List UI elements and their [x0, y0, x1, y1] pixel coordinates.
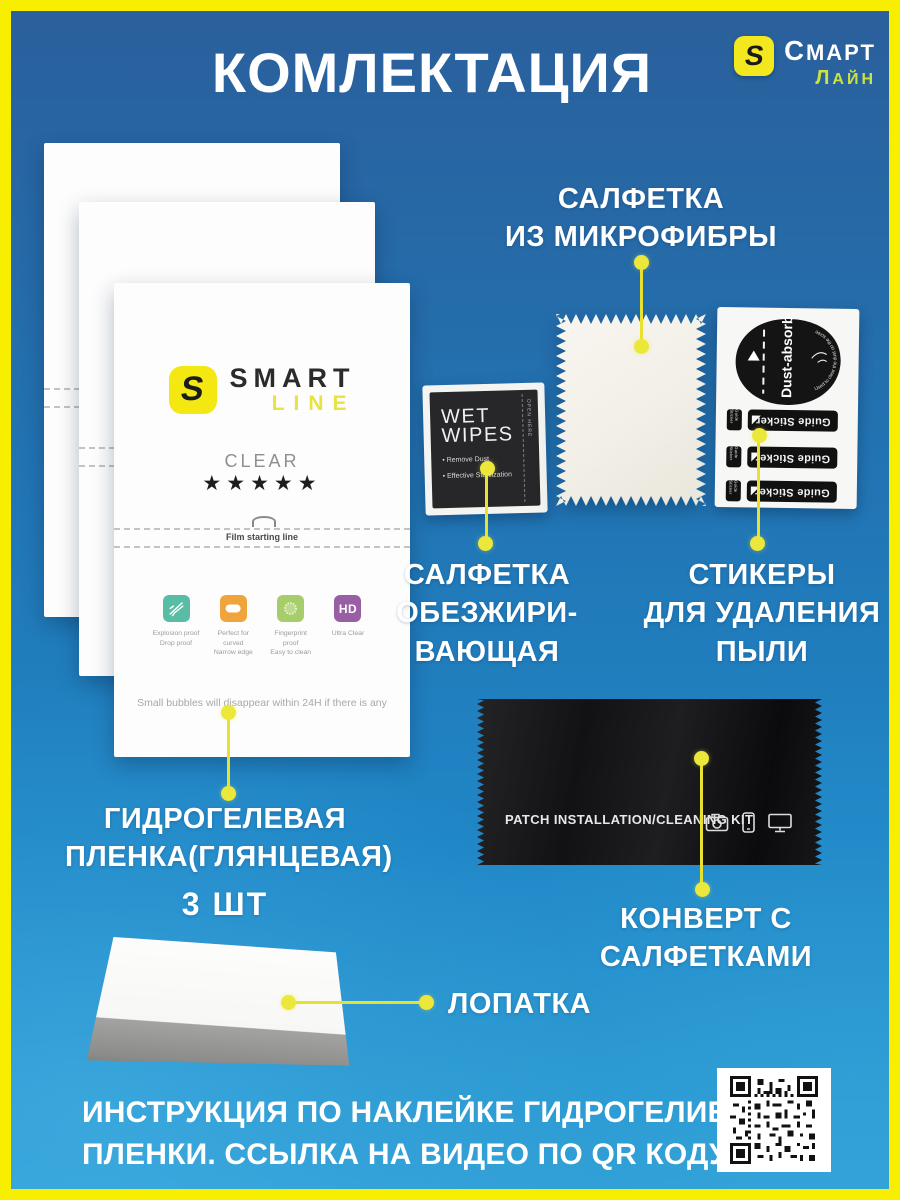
- label-degreasing-wipe: САЛФЕТКА ОБЕЗЖИРИ- ВАЮЩАЯ: [347, 556, 627, 671]
- callout-line: [700, 759, 703, 890]
- dust-absorber-sticker: Dust-absorber Used to clear the dust on …: [727, 313, 848, 411]
- footer-instruction: ИНСТРУКЦИЯ ПО НАКЛЕЙКЕ ГИДРОГЕЛИЕВОЙ ПЛЕ…: [82, 1092, 794, 1176]
- guide-sticker-row: Guide Sticker Guide Sticker: [716, 409, 858, 432]
- camera-icon: [705, 813, 729, 832]
- film-sheet-front: S SMART LINE CLEAR ★★★★★ Film starting l…: [114, 283, 410, 757]
- callout-dot: [750, 536, 765, 551]
- film-brand-bottom: LINE: [230, 392, 356, 416]
- film-cut-line: [114, 546, 410, 548]
- feature-explosion-proof: Explosion proofDrop proof: [152, 595, 200, 658]
- smartphone-icon: [742, 812, 755, 833]
- callout-dot: [634, 339, 649, 354]
- callout-dot: [419, 995, 434, 1010]
- film-brand-top: SMART: [230, 363, 356, 394]
- film-logo-square: S: [169, 366, 217, 414]
- guide-sticker: Guide Sticker: [747, 446, 837, 468]
- label-hydrogel-film: ГИДРОГЕЛЕВАЯ ПЛЕНКА(ГЛЯНЦЕВАЯ) 3 ШТ: [65, 800, 385, 925]
- film-quantity: 3 ШТ: [65, 883, 385, 925]
- label-spatula: ЛОПАТКА: [448, 985, 628, 1023]
- product-kit-infographic: КОМЛЕКТАЦИЯ S СМАРТ ЛАЙН S SMART LINE CL…: [0, 0, 900, 1200]
- curved-edge-icon: [220, 595, 247, 622]
- feature-caption: Explosion proofDrop proof: [153, 629, 200, 648]
- microfiber-cloth: [556, 314, 706, 506]
- callout-dot: [480, 461, 495, 476]
- microfiber-cloth-wrap: [556, 314, 706, 506]
- film-wordmark: SMART LINE: [230, 363, 356, 416]
- film-cut-line: [114, 528, 410, 530]
- label-dust-stickers: СТИКЕРЫ ДЛЯ УДАЛЕНИЯ ПЫЛИ: [622, 556, 900, 671]
- guide-sticker-tab: Guide Sticker: [726, 446, 741, 467]
- guide-sticker-tab: Guide Sticker: [727, 409, 742, 430]
- brand-s-icon: S: [742, 40, 765, 72]
- brand-name: СМАРТ: [784, 36, 876, 66]
- label-wipes-envelope: КОНВЕРТ С САЛФЕТКАМИ: [566, 900, 846, 977]
- film-s-icon: S: [178, 370, 206, 409]
- monitor-icon: [768, 813, 792, 833]
- guide-sticker-tab: Guide Sticker: [726, 480, 741, 501]
- cleaning-kit-envelope: PATCH INSTALLATION/CLEANING KIT: [477, 699, 822, 865]
- brand-logo: S СМАРТ ЛАЙН: [734, 36, 876, 90]
- brand-suffix: ЛАЙН: [815, 67, 876, 90]
- callout-dot: [221, 705, 236, 720]
- film-start-line-label: Film starting line: [114, 532, 410, 542]
- film-feature-list: Explosion proofDrop proof Perfect for cu…: [152, 595, 372, 658]
- film-brand-lockup: S SMART LINE: [114, 363, 410, 416]
- film-variant-label: CLEAR: [114, 451, 410, 472]
- brand-logo-square: S: [734, 36, 774, 76]
- callout-dot: [281, 995, 296, 1010]
- envelope-device-icons: [705, 812, 792, 833]
- callout-line: [640, 262, 643, 346]
- callout-dot: [695, 882, 710, 897]
- callout-dot: [634, 255, 649, 270]
- callout-line: [757, 436, 760, 544]
- squeegee-spatula: [84, 930, 352, 1070]
- callout-line: [227, 713, 230, 794]
- callout-dot: [478, 536, 493, 551]
- feature-caption: Perfect for curvedNarrow edge: [209, 629, 257, 658]
- callout-line: [289, 1001, 427, 1004]
- brand-wordmark: СМАРТ ЛАЙН: [784, 36, 876, 90]
- guide-sticker-row: Guide Sticker Guide Sticker: [715, 480, 857, 503]
- caret-up-icon: [252, 516, 276, 527]
- film-star-rating: ★★★★★: [114, 471, 410, 496]
- callout-dot: [752, 428, 767, 443]
- dust-sticker-sheet: Dust-absorber Used to clear the dust on …: [715, 307, 860, 509]
- feature-curved-edge: Perfect for curvedNarrow edge: [209, 595, 257, 658]
- callout-dot: [694, 751, 709, 766]
- svg-text:Dust-absorber: Dust-absorber: [778, 313, 795, 398]
- guide-sticker-row: Guide Sticker Guide Sticker: [715, 446, 857, 469]
- guide-sticker: Guide Sticker: [747, 480, 837, 502]
- qr-code: [717, 1068, 831, 1172]
- scratch-proof-icon: [163, 595, 190, 622]
- fingerprint-icon: [277, 595, 304, 622]
- label-microfiber-cloth: САЛФЕТКА ИЗ МИКРОФИБРЫ: [481, 180, 801, 257]
- feature-fingerprint-proof: Fingerprint proofEasy to clean: [267, 595, 315, 658]
- callout-line: [485, 469, 488, 544]
- callout-dot: [221, 786, 236, 801]
- film-bubbles-note: Small bubbles will disappear within 24H …: [114, 697, 410, 709]
- feature-caption: Fingerprint proofEasy to clean: [267, 629, 315, 658]
